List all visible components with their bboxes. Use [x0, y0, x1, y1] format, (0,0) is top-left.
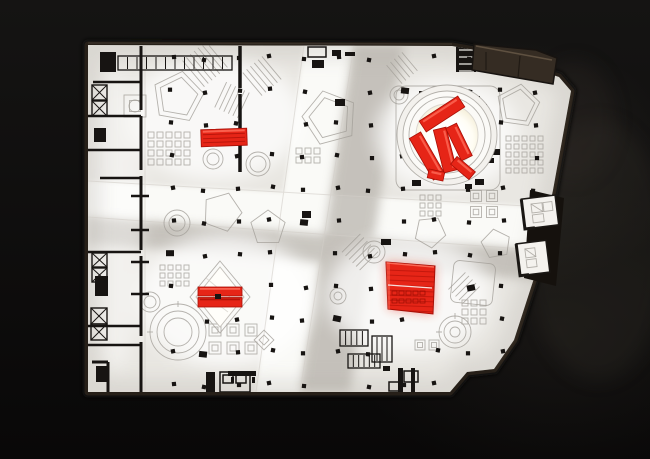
- red-bar-top-left: [201, 128, 248, 147]
- model-photo-svg: [0, 0, 650, 459]
- red-circle-installation: [397, 85, 497, 185]
- red-panel-bottom-right: [385, 262, 436, 314]
- photo-background: [0, 0, 650, 459]
- stair-core-right-upper: [521, 195, 558, 229]
- rim-highlight-top: [88, 43, 452, 44]
- stair-core-right-lower: [516, 240, 550, 275]
